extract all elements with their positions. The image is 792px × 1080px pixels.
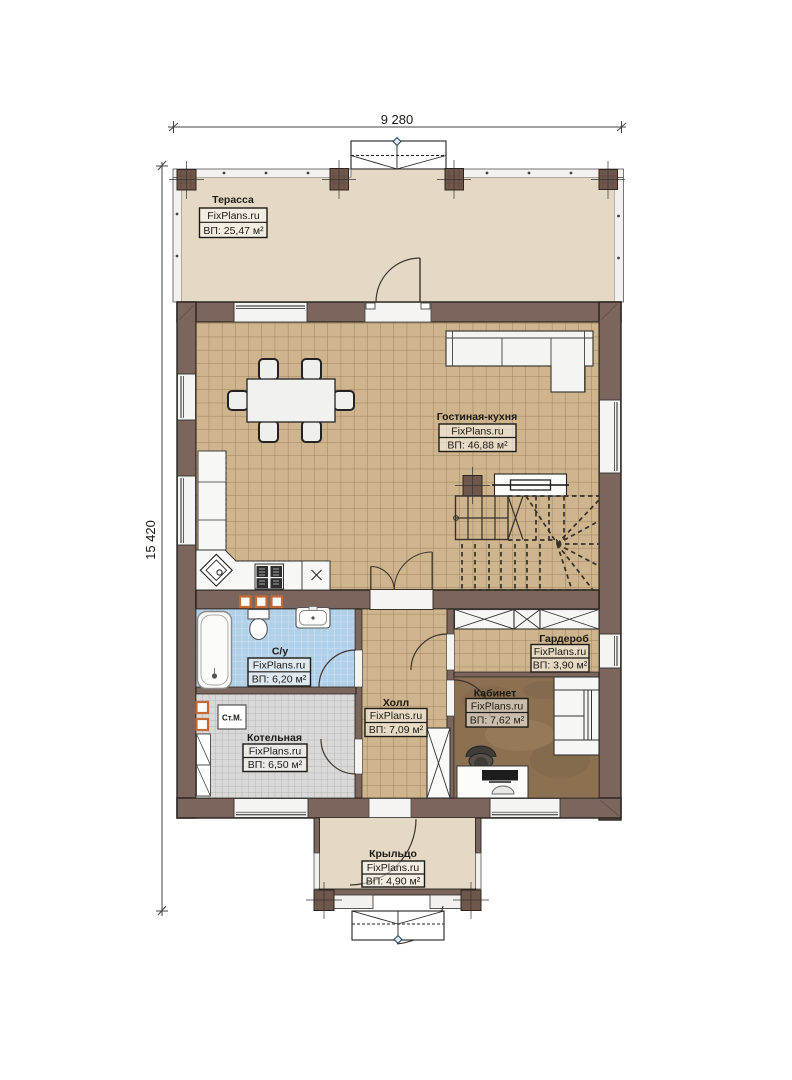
svg-text:Терасса: Терасса — [212, 194, 254, 206]
svg-text:ВП: 46,88 м²: ВП: 46,88 м² — [447, 440, 508, 452]
svg-text:ВП: 7,09 м²: ВП: 7,09 м² — [369, 724, 424, 736]
svg-text:ВП: 3,90 м²: ВП: 3,90 м² — [533, 660, 588, 672]
svg-text:ВП: 6,50 м²: ВП: 6,50 м² — [248, 759, 303, 771]
svg-text:FixPlans.ru: FixPlans.ru — [451, 426, 504, 438]
svg-text:FixPlans.ru: FixPlans.ru — [370, 710, 423, 722]
svg-text:С/у: С/у — [272, 646, 289, 658]
svg-text:ВП: 25,47 м²: ВП: 25,47 м² — [203, 225, 264, 237]
svg-text:FixPlans.ru: FixPlans.ru — [253, 660, 306, 672]
svg-text:FixPlans.ru: FixPlans.ru — [471, 701, 524, 713]
svg-text:Холл: Холл — [383, 697, 409, 709]
svg-text:ВП: 7,62 м²: ВП: 7,62 м² — [470, 715, 525, 727]
svg-text:9 280: 9 280 — [381, 112, 414, 127]
svg-text:FixPlans.ru: FixPlans.ru — [534, 646, 587, 658]
svg-text:FixPlans.ru: FixPlans.ru — [207, 210, 260, 222]
svg-text:FixPlans.ru: FixPlans.ru — [367, 862, 420, 874]
svg-text:Гардероб: Гардероб — [539, 633, 589, 645]
svg-text:ВП: 6,20 м²: ВП: 6,20 м² — [252, 674, 307, 686]
svg-text:15 420: 15 420 — [143, 520, 158, 560]
svg-text:Гостиная-кухня: Гостиная-кухня — [437, 411, 517, 423]
svg-text:Крыльцо: Крыльцо — [369, 848, 417, 860]
svg-text:Кабинет: Кабинет — [474, 688, 517, 700]
svg-text:ВП: 4,90 м²: ВП: 4,90 м² — [366, 876, 421, 888]
svg-text:Ст.М.: Ст.М. — [222, 714, 242, 723]
svg-text:Котельная: Котельная — [247, 732, 302, 744]
svg-text:FixPlans.ru: FixPlans.ru — [249, 746, 302, 758]
